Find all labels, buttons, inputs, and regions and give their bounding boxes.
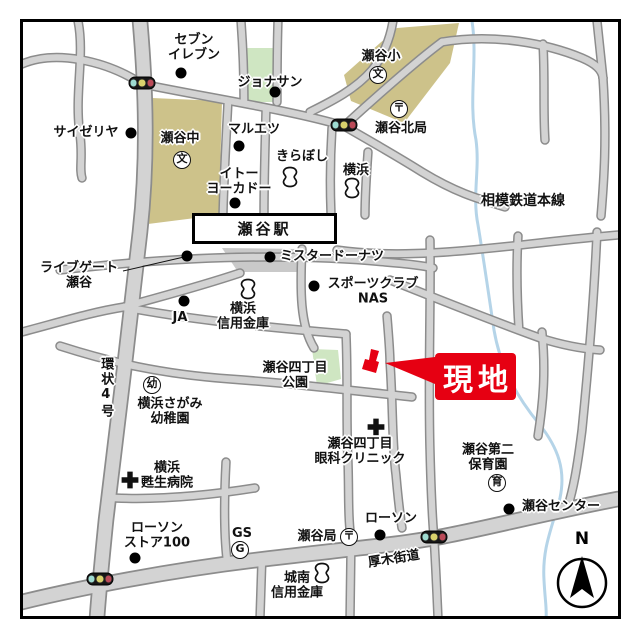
seya-4chome-eye-clinic-hospital-icon [365,416,387,438]
signal-northwest-traffic-signal-icon [129,77,156,90]
street-label-atsugi-kaido: 厚木街道 [367,549,421,571]
seya-4chome-park-label: 瀬谷四丁目 公園 [262,362,327,391]
yokohama-bank-label: 横浜 [343,164,369,179]
yokohama-sagami-kindergarten-label: 横浜さがみ 幼稚園 [137,398,202,427]
site-location-box: 現地 [435,353,516,400]
seven-eleven-dot [176,68,187,79]
kiraboshi-bank-bank-icon [282,166,299,189]
saizeriya-dot [126,128,137,139]
livegate-seya-dot [182,251,193,262]
saizeriya-label: サイゼリヤ [53,126,118,141]
lawson-store-100-dot [130,553,141,564]
gas-station-gas-icon: G [231,541,249,559]
seya-elementary-label: 瀬谷小 [361,50,400,65]
ito-yokado-label: イトー ヨーカドー [206,168,271,197]
seya-post-office-post-icon: 〒 [340,528,358,546]
compass: N [556,531,608,611]
seya-station: 瀬谷駅 [192,213,337,244]
seya-elementary-school-icon: 文 [369,66,387,84]
seven-eleven-label: セブン イレブン [168,34,220,63]
sports-club-nas-label: スポーツクラブ NAS [328,278,419,307]
seya-center-dot [504,504,515,515]
seya-4chome-eye-clinic-label: 瀬谷四丁目 眼科クリニック [314,438,405,467]
yokohama-sosei-hospital-hospital-icon [119,469,141,491]
signal-seya-kita-traffic-signal-icon [331,119,358,132]
signal-atsugi-kaido-traffic-signal-icon [421,531,448,544]
lawson-dot [375,530,386,541]
ja-dot [179,296,190,307]
lawson-label: ローソン [365,512,417,527]
map-canvas: 瀬谷駅 相模鉄道本線 現地 N セブン イレブンジョナサンサイゼリヤ文瀬谷中マル… [0,0,640,640]
jonathan-label: ジョナサン [237,76,302,91]
yokohama-sosei-hospital-label: 横浜 甦生病院 [141,462,193,491]
sports-club-nas-dot [309,281,320,292]
signal-southwest-traffic-signal-icon [87,573,114,586]
railway-line-label: 相模鉄道本線 [481,190,565,210]
mister-donut-label: ミスタードーナツ [280,250,384,265]
yokohama-bank-bank-icon [344,177,361,200]
seya-daini-nursery-nursery-icon: 育 [488,474,506,492]
poi-layer: 瀬谷駅 相模鉄道本線 現地 N セブン イレブンジョナサンサイゼリヤ文瀬谷中マル… [0,0,640,640]
jonan-shinkin-bank-label: 城南 信用金庫 [271,572,323,601]
seya-station-label: 瀬谷駅 [237,218,291,239]
seya-junior-high-school-icon: 文 [173,151,191,169]
seya-center-label: 瀬谷センター [522,500,600,515]
seya-kita-post-office-post-icon: 〒 [390,100,408,118]
maruetsu-dot [234,141,245,152]
kiraboshi-bank-label: きらぼし [276,150,328,165]
mister-donut-dot [265,252,276,263]
seya-junior-high-label: 瀬谷中 [160,132,199,147]
gas-station-label: GS [232,527,252,542]
yokohama-shinkin-bank-label: 横浜 信用金庫 [217,303,269,332]
compass-north-label: N [575,529,589,549]
ito-yokado-dot [230,198,241,209]
yokohama-sagami-kindergarten-kinder-icon: 幼 [143,376,161,394]
seya-post-office-label: 瀬谷局 [297,530,336,545]
site-location-label: 現地 [438,355,513,399]
lawson-store-100-label: ローソン ストア100 [124,522,190,551]
ja-label: JA [173,311,188,326]
yokohama-shinkin-bank-bank-icon [240,278,257,301]
street-label-kanjo-4: 環状4号 [98,357,113,419]
seya-daini-nursery-label: 瀬谷第二 保育園 [462,444,514,473]
seya-kita-post-office-label: 瀬谷北局 [375,122,427,137]
maruetsu-label: マルエツ [228,123,280,138]
livegate-seya-label: ライブゲート 瀬谷 [40,262,118,291]
